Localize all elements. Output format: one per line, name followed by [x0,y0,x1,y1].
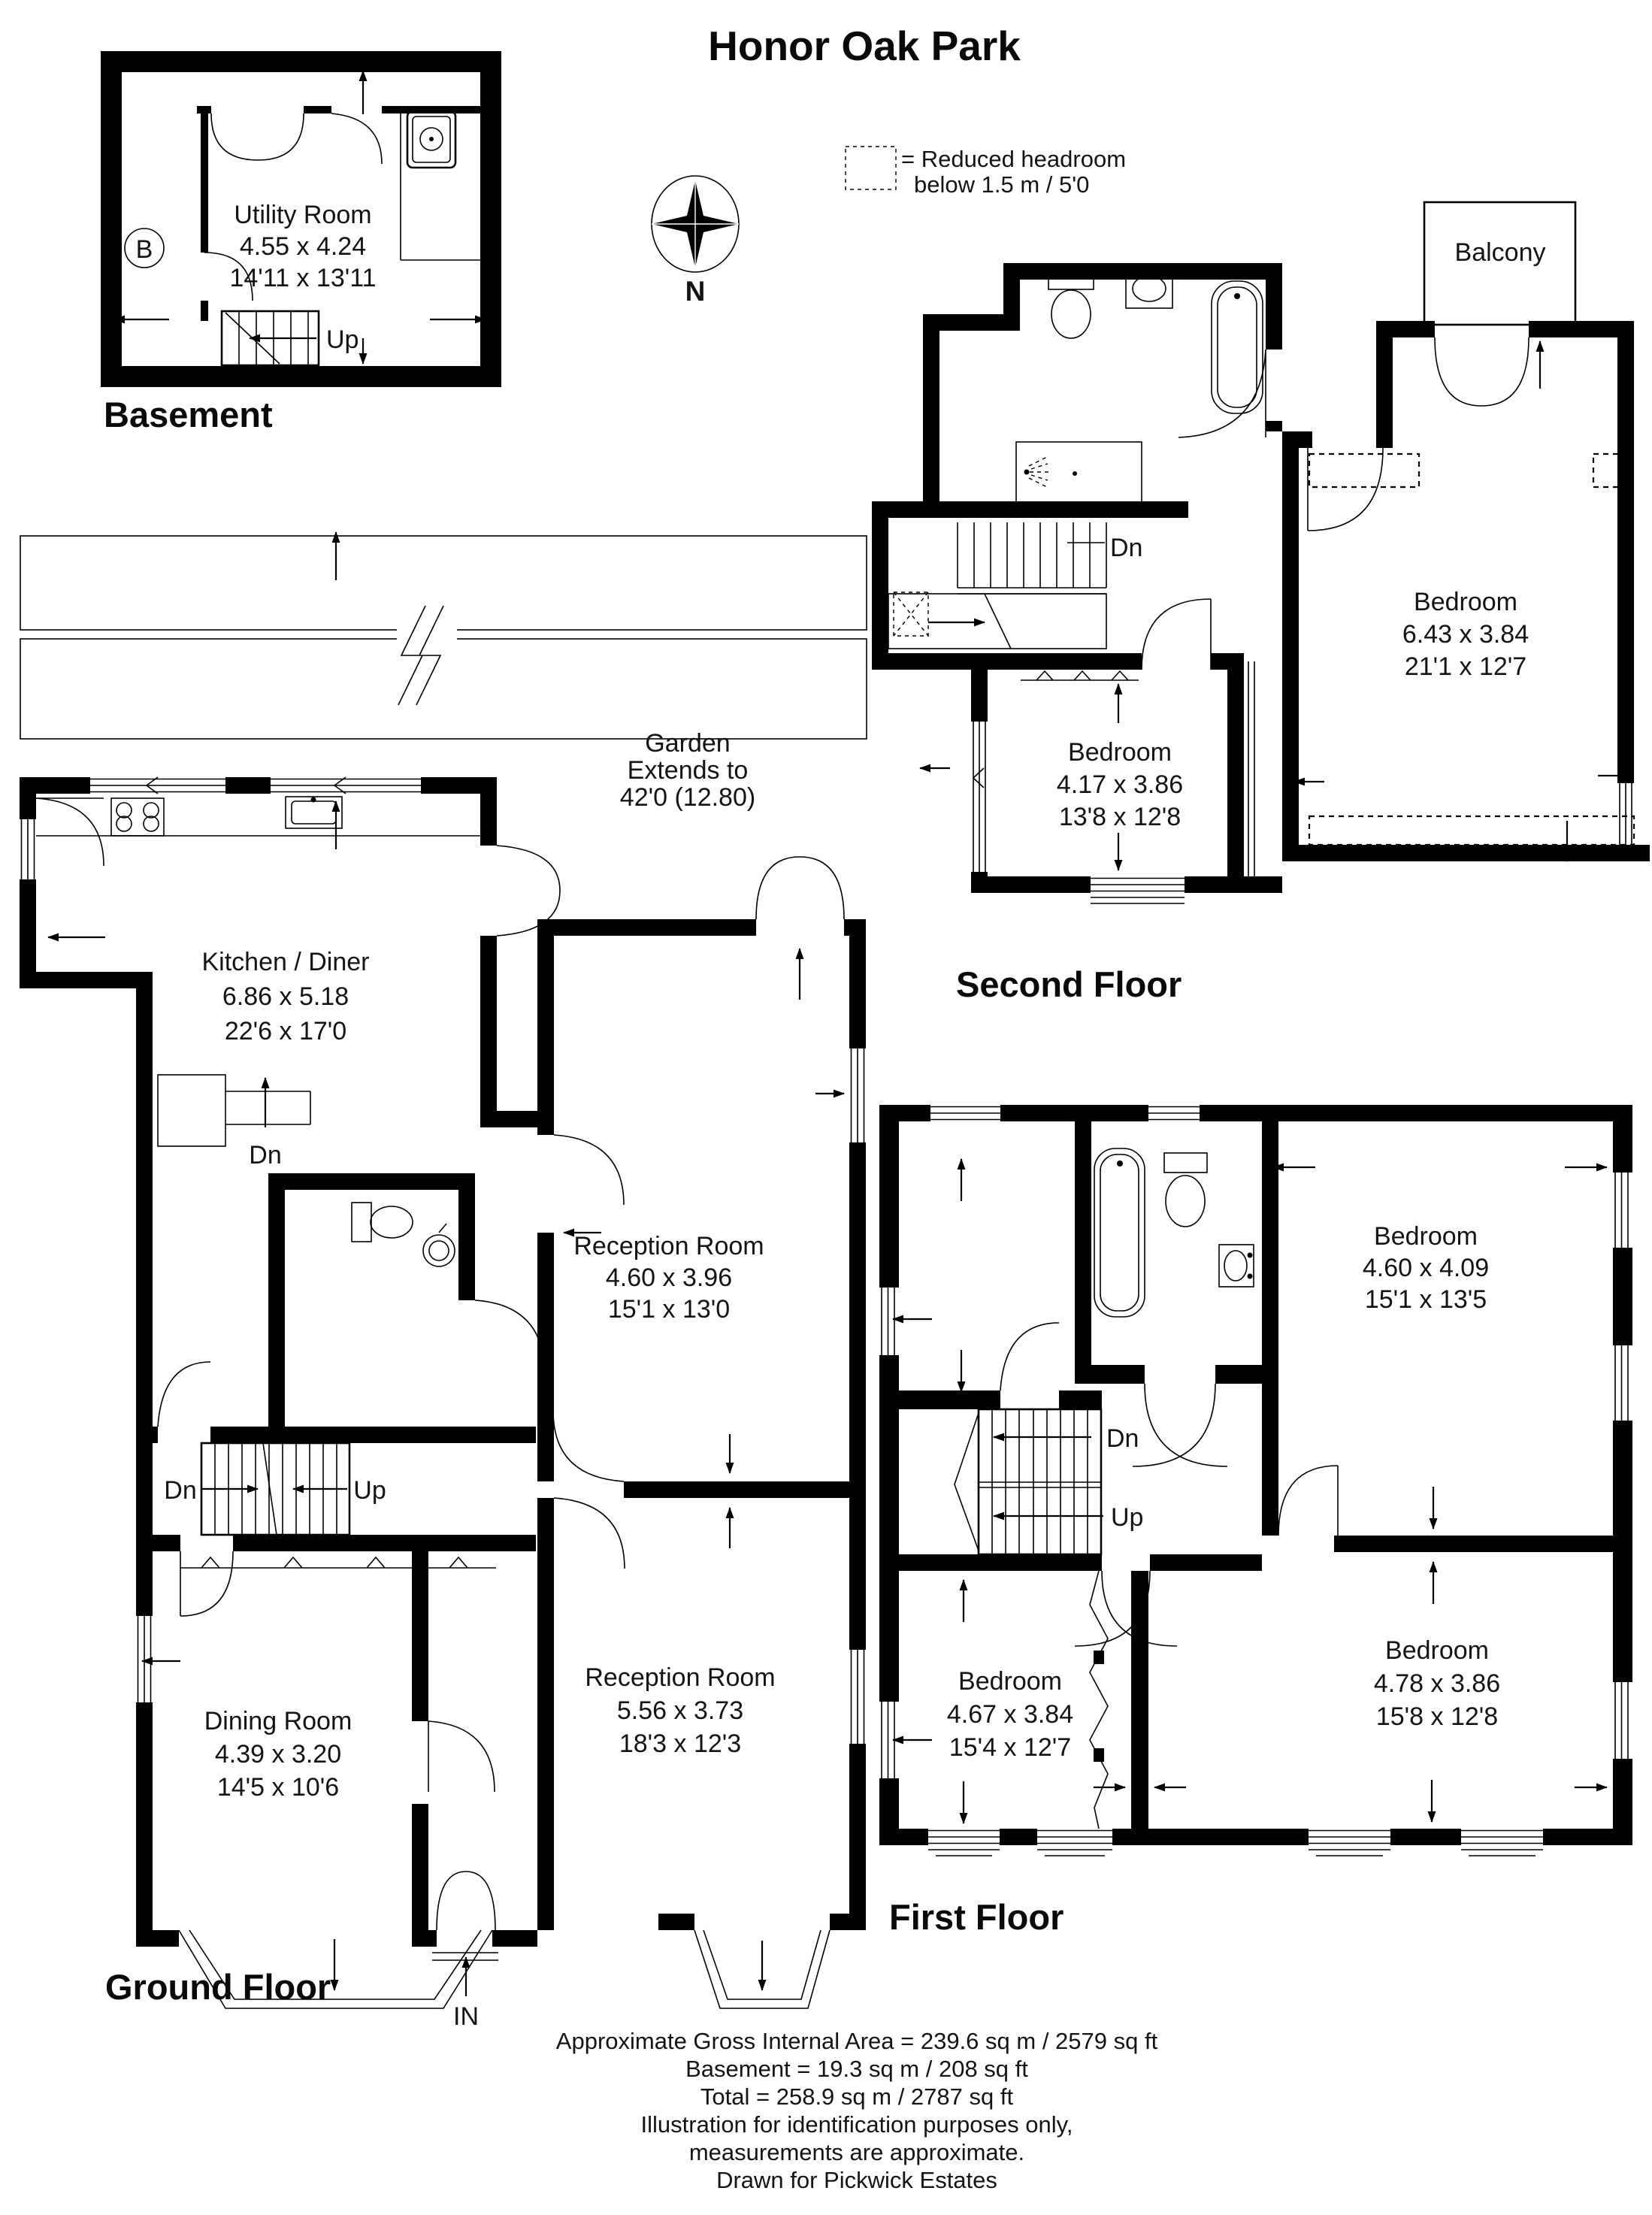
shower-icon [1016,442,1142,505]
floorplan-page: Honor Oak Park = Reduced headroom below … [0,0,1652,2215]
first-bedroom-front-left-name: Bedroom [958,1667,1062,1696]
first-bedroom-front-right-name: Bedroom [1385,1636,1489,1665]
second-stairs-down-label: Dn [1110,534,1142,562]
footer-line-1: Approximate Gross Internal Area = 239.6 … [556,2028,1158,2054]
sink-icon [286,797,342,828]
second-small-bedroom-name: Bedroom [1068,738,1172,767]
utility-room-name: Utility Room [234,201,371,229]
second-small-bedroom-metric: 4.17 x 3.86 [1057,770,1183,799]
first-bedroom-front-right-metric: 4.78 x 3.86 [1374,1669,1500,1698]
first-bedroom-front-left-imperial: 15'4 x 12'7 [949,1733,1071,1762]
compass-icon: N [652,176,739,307]
footer-line-6: Drawn for Pickwick Estates [716,2167,997,2193]
toilet-icon [1164,1153,1207,1227]
footer-line-3: Total = 258.9 sq m / 2787 sq ft [700,2083,1014,2110]
bathtub-icon [1094,1148,1145,1317]
first-stairs-down-label: Dn [1106,1424,1139,1453]
dining-name: Dining Room [204,1707,352,1735]
basement-plan: Up B Utility Room 4.55 x 4.24 14'11 x 13… [101,51,501,434]
ground-floor-label: Ground Floor [105,1967,331,2007]
first-bedroom-rear-metric: 4.60 x 4.09 [1363,1254,1489,1282]
second-main-bedroom-name: Bedroom [1414,588,1517,616]
second-floor-label: Second Floor [956,964,1182,1004]
first-stairs-up-label: Up [1111,1503,1143,1532]
first-bedroom-rear-name: Bedroom [1374,1222,1478,1251]
compass-north-label: N [685,276,706,307]
ground-stairs: Dn Up [164,1443,386,1535]
kitchen-metric: 6.86 x 5.18 [222,982,349,1011]
basement-marker-label: B [136,235,153,264]
legend-line1: = Reduced headroom [901,146,1126,172]
kitchen-imperial: 22'6 x 17'0 [225,1017,346,1045]
balcony: Balcony [1424,202,1575,325]
basement-stairs-up-label: Up [326,325,359,354]
garden-label-line3: 42'0 (12.80) [620,783,755,812]
reception-front-name: Reception Room [585,1663,775,1692]
washing-machine-icon [407,111,455,168]
first-floor-label: First Floor [889,1897,1064,1937]
first-bathroom-fixtures [1094,1148,1254,1317]
ground-stairs-down-label: Dn [164,1476,196,1505]
first-bedroom-rear-imperial: 15'1 x 13'5 [1365,1285,1487,1314]
utility-room-imperial: 14'11 x 13'11 [229,264,376,292]
second-bathroom [923,263,1282,518]
ground-floor-plan: Garden Extends to 42'0 (12.80) [20,532,867,2031]
second-floor-plan: Balcony [872,202,1650,1004]
garden-label-line1: Garden [645,729,730,758]
basin-icon [423,1224,455,1266]
first-bedroom-front-left-metric: 4.67 x 3.84 [947,1700,1073,1729]
basement-stairs: Up [222,311,363,365]
footer-line-4: Illustration for identification purposes… [641,2111,1073,2138]
ground-stairs-up-label: Up [353,1476,386,1505]
reception-rear-metric: 4.60 x 3.96 [606,1263,732,1292]
page-title: Honor Oak Park [708,23,1021,69]
garden-area: Garden Extends to 42'0 (12.80) [20,532,867,812]
reduced-headroom-legend: = Reduced headroom below 1.5 m / 5'0 [846,146,1126,198]
utility-room-metric: 4.55 x 4.24 [240,232,366,261]
toilet-icon [352,1203,413,1242]
toilet-icon [1048,271,1094,338]
first-stairs: Dn Up [955,1409,1143,1554]
legend-line2: below 1.5 m / 5'0 [914,171,1089,198]
footer-notes: Approximate Gross Internal Area = 239.6 … [556,2028,1158,2193]
reception-front-imperial: 18'3 x 12'3 [619,1729,741,1758]
balcony-label: Balcony [1455,238,1546,267]
footer-line-5: measurements are approximate. [689,2139,1024,2165]
kitchen-name: Kitchen / Diner [202,948,370,976]
reception-rear-imperial: 15'1 x 13'0 [608,1295,730,1324]
dining-imperial: 14'5 x 10'6 [217,1773,339,1802]
dining-metric: 4.39 x 3.20 [215,1740,341,1769]
second-small-bedroom-imperial: 13'8 x 12'8 [1059,803,1181,831]
footer-line-2: Basement = 19.3 sq m / 208 sq ft [685,2056,1028,2082]
kitchen-stairs-down-label: Dn [249,1141,281,1170]
second-stairs: Dn [872,501,1142,670]
first-bedroom-front-right-imperial: 15'8 x 12'8 [1376,1702,1498,1731]
reception-front-metric: 5.56 x 3.73 [617,1696,743,1725]
second-main-bedroom-imperial: 21'1 x 12'7 [1405,652,1526,681]
second-main-bedroom-metric: 6.43 x 3.84 [1402,620,1529,649]
bathtub-icon [1212,281,1263,413]
wc-room [268,1173,545,1443]
entrance-in-label: IN [453,2002,479,2031]
second-small-bedroom: Bedroom 4.17 x 3.86 13'8 x 12'8 [920,599,1282,903]
basement-marker: B [125,228,164,268]
sink-icon [1219,1245,1254,1287]
basement-floor-label: Basement [104,395,273,434]
garden-label-line2: Extends to [628,756,749,785]
hob-icon [111,798,164,836]
reception-rear-name: Reception Room [573,1232,764,1260]
floorplan-canvas: Honor Oak Park = Reduced headroom below … [0,0,1652,2215]
first-floor-plan: Dn Up [879,1105,1632,1937]
